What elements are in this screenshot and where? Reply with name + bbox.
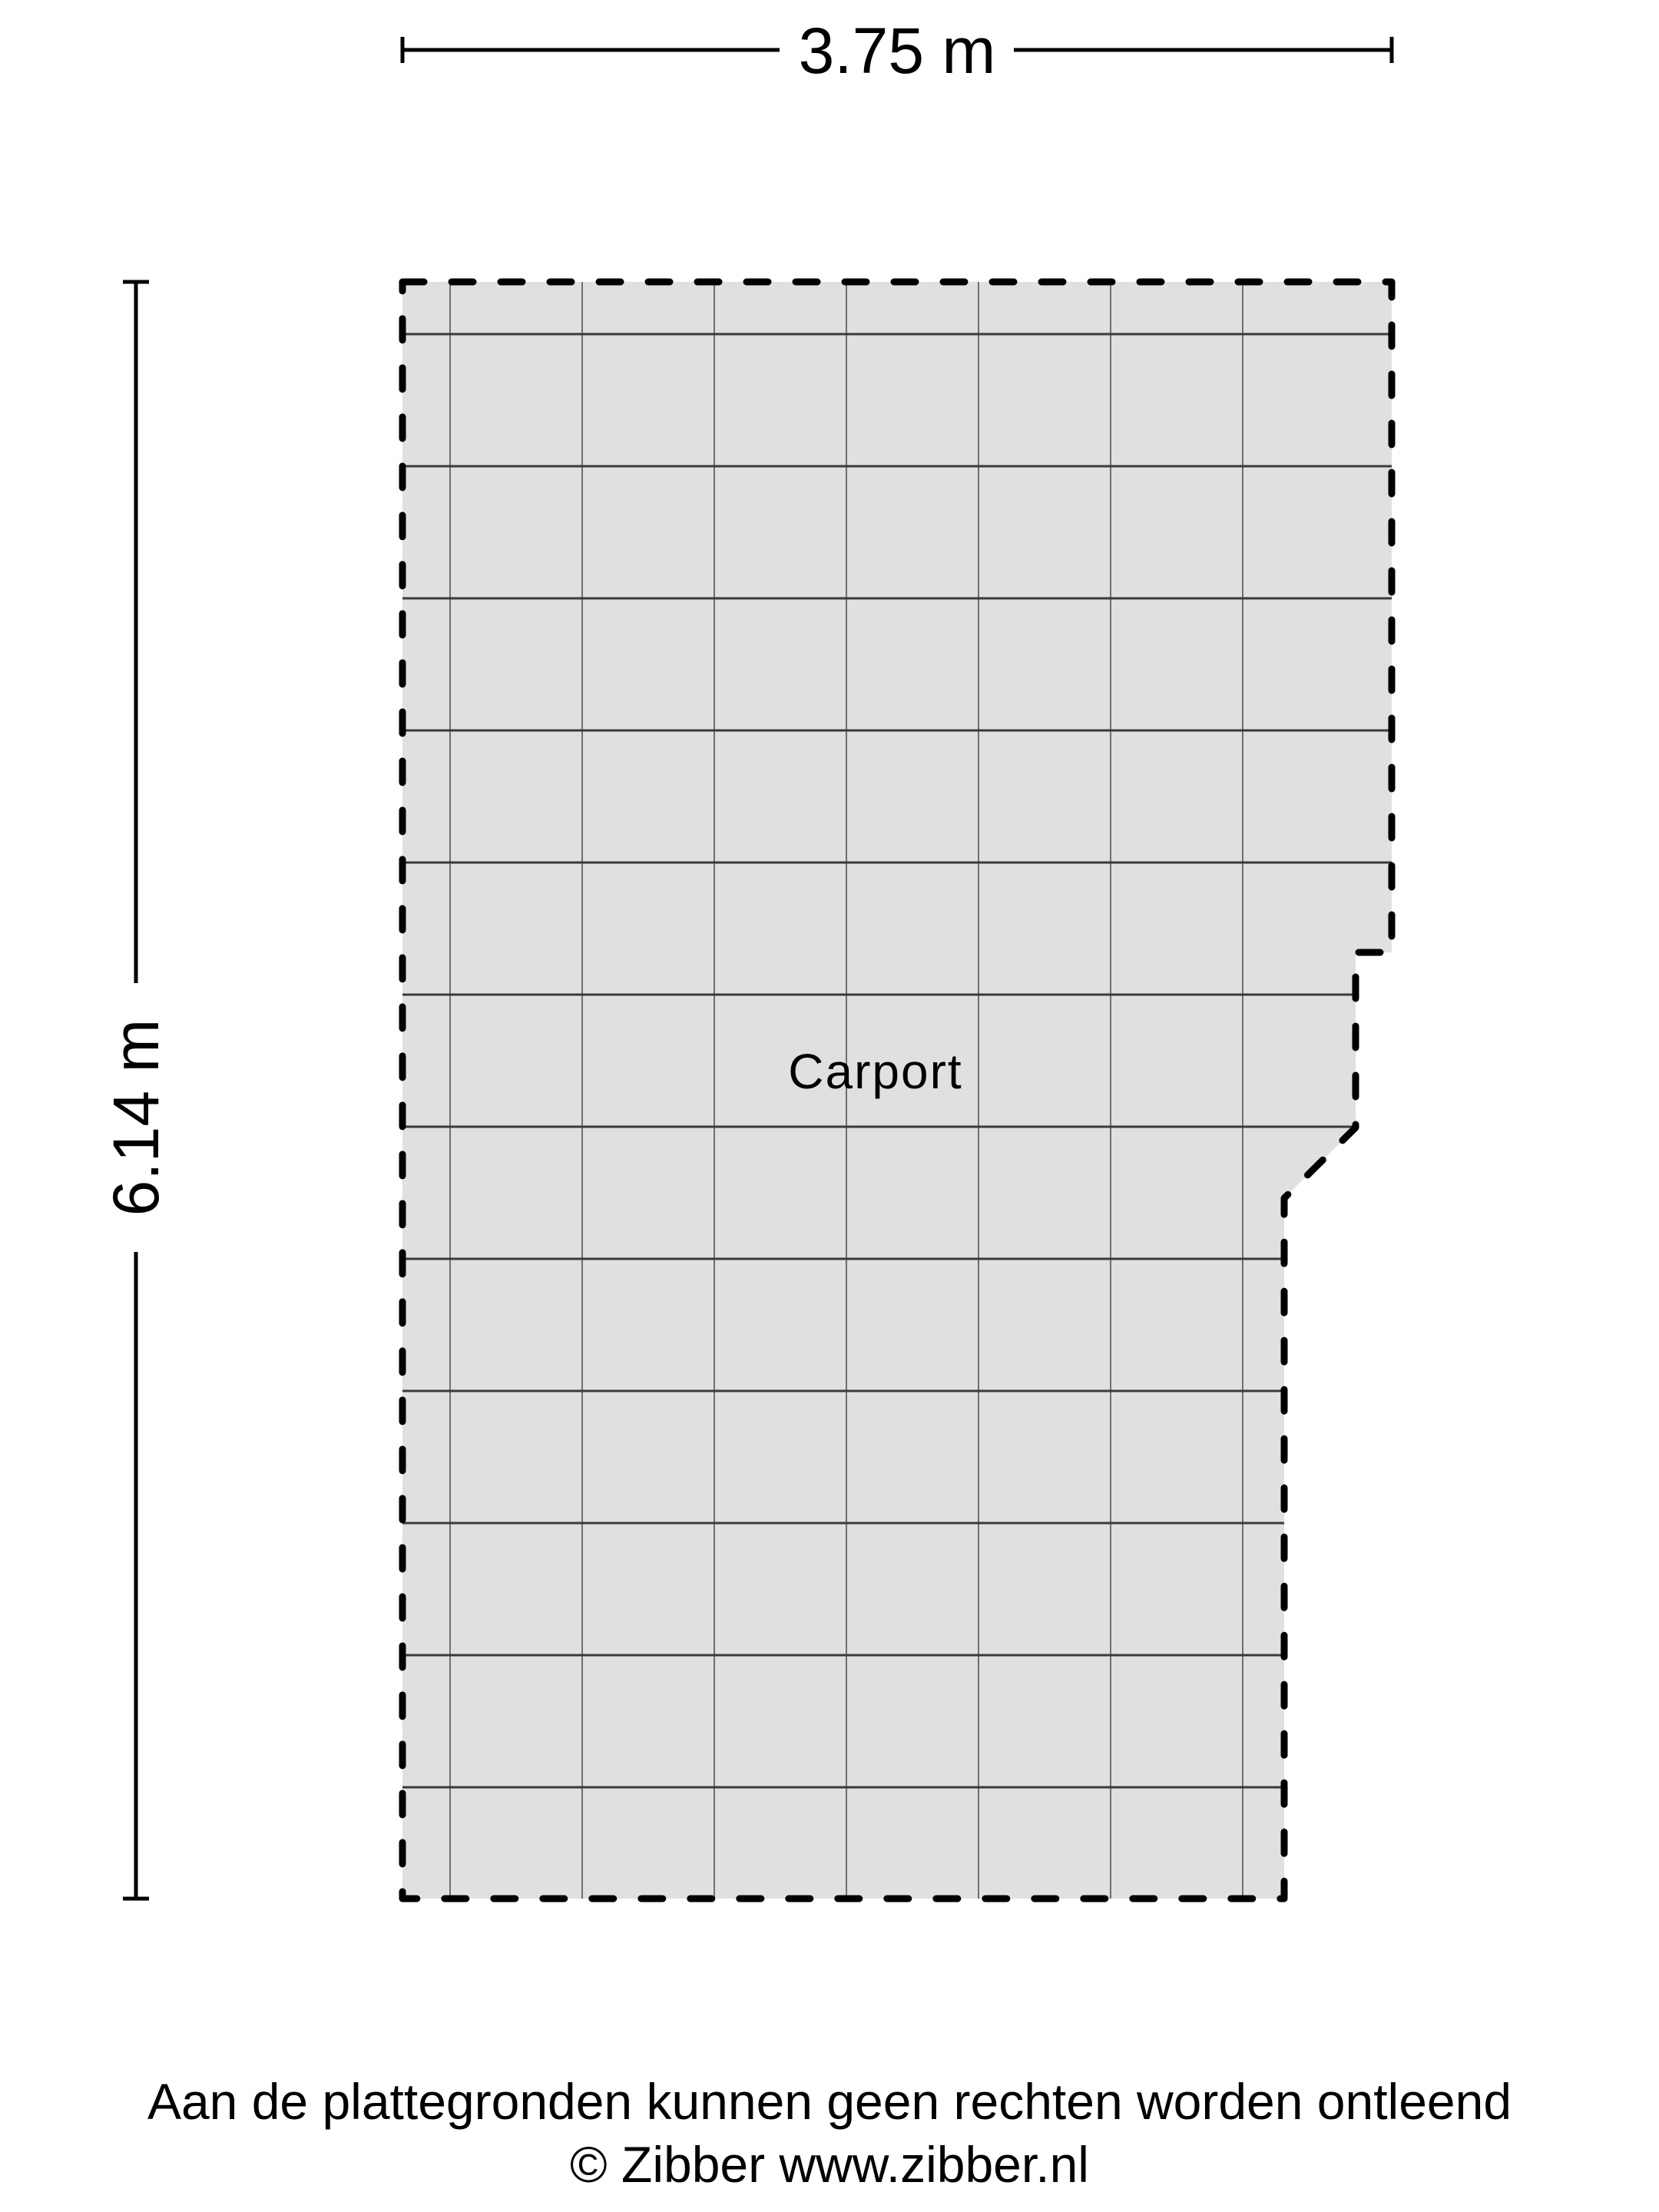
height-dimension-label: 6.14 m xyxy=(100,1019,172,1217)
width-dimension-line: 3.75 m xyxy=(402,15,1392,87)
width-dimension-label: 3.75 m xyxy=(799,15,996,87)
height-dimension-line: 6.14 m xyxy=(100,282,172,1899)
floorplan-page: Carport 3.75 m 6.14 m Aan de plattegrond… xyxy=(0,0,1659,2212)
disclaimer-text: Aan de plattegronden kunnen geen rechten… xyxy=(147,2073,1512,2130)
room-label: Carport xyxy=(788,1044,962,1099)
copyright-text: © Zibber www.zibber.nl xyxy=(570,2136,1089,2193)
floorplan-canvas: Carport 3.75 m 6.14 m Aan de plattegrond… xyxy=(0,0,1659,2212)
